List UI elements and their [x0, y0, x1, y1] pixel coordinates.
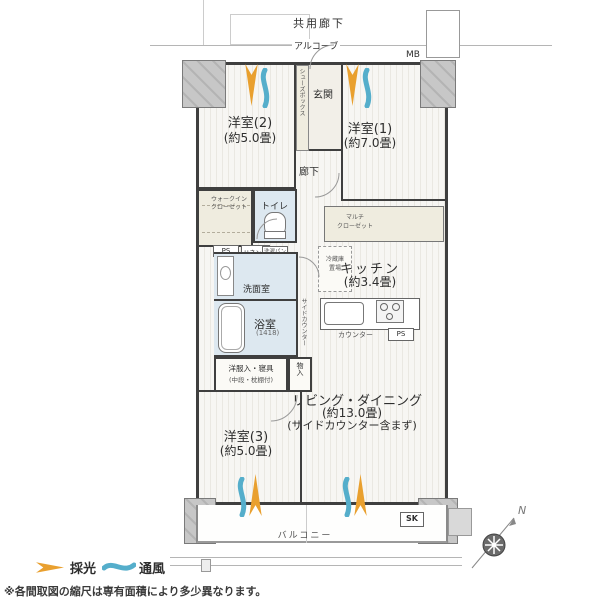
- counter-label: カウンター: [338, 330, 373, 340]
- stove-burner2-icon: [392, 303, 400, 311]
- wind-wave-icon: [360, 68, 374, 108]
- balcony-edge-line1: [170, 557, 462, 558]
- walkin-closet-shelves2: [202, 232, 250, 233]
- shoe-box-label: シューズボックス: [298, 68, 304, 116]
- corridor-tick: [203, 0, 204, 45]
- balcony-edge-line2: [170, 565, 462, 566]
- bedroom2-size: (約5.0畳): [210, 129, 290, 146]
- entrance-door-arc: [309, 44, 335, 70]
- living-note: (サイドカウンター含まず): [287, 417, 417, 433]
- wind-wave-icon: [258, 68, 272, 108]
- bedroom3-size: (約5.0畳): [206, 442, 286, 459]
- legend-daylight-label: 採光: [70, 558, 96, 577]
- ps2-label: PS: [388, 330, 414, 338]
- stove-burner3-icon: [386, 313, 393, 320]
- multi-closet-label2: クローゼット: [330, 221, 380, 230]
- washroom-door-arc: [298, 256, 320, 278]
- multi-closet-label1: マルチ: [330, 212, 380, 221]
- common-corridor-label: 共用廊下: [284, 15, 354, 31]
- kitchen-sink-icon: [324, 302, 364, 325]
- wall-living-left: [300, 392, 302, 505]
- bath-size: (1418): [256, 329, 279, 337]
- compass: N: [462, 498, 534, 573]
- bedroom1-door-arc: [314, 172, 340, 198]
- balcony-drain-box: [201, 559, 211, 572]
- futon-label1: 洋服入・寝具: [214, 363, 288, 374]
- footnote: ※各間取図の縮尺は専有面積により多少異なります。: [4, 583, 266, 599]
- mb-label: MB: [406, 50, 420, 60]
- compass-north-label: N: [518, 504, 526, 517]
- side-counter-label: サイドカウンター: [300, 298, 306, 346]
- entrance-label: 玄関: [313, 86, 333, 101]
- legend-daylight-arrow-icon: [36, 562, 64, 573]
- washroom-label: 洗面室: [243, 282, 270, 295]
- legend-ventilation-label: 通風: [139, 558, 165, 577]
- mb-shaft: [426, 10, 460, 58]
- stove-burner1-icon: [380, 303, 388, 311]
- sk-label: SK: [400, 514, 424, 523]
- legend-wind-wave-icon: [102, 558, 136, 576]
- bedroom3-door-arc: [270, 394, 298, 422]
- bathtub-inner-icon: [221, 306, 242, 350]
- toilet-door-arc: [256, 218, 278, 240]
- toilet-label: トイレ: [261, 199, 288, 212]
- storage-label: 物入: [296, 362, 303, 376]
- wall-bedroom3-top: [199, 390, 302, 392]
- wind-wave-icon: [340, 477, 354, 517]
- vanity-basin-icon: [220, 266, 231, 280]
- balcony-label: バルコニー: [265, 528, 345, 541]
- corridor-line: [150, 45, 552, 46]
- bedroom1-size: (約7.0畳): [330, 134, 410, 151]
- futon-label2: (中段・枕棚付): [214, 374, 288, 384]
- wic-label2: クローゼット: [211, 202, 247, 211]
- kitchen-size: (約3.4畳): [335, 273, 405, 290]
- wind-wave-icon: [235, 477, 249, 517]
